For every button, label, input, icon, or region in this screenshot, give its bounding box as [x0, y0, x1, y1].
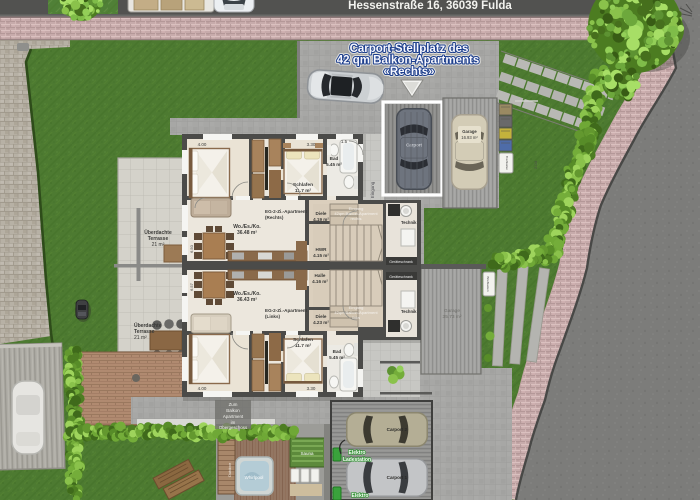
svg-text:21 m²: 21 m² [134, 335, 147, 341]
svg-text:Apartment: Apartment [223, 414, 244, 419]
svg-text:6.57: 6.57 [189, 282, 194, 291]
svg-text:links: links [352, 315, 360, 320]
svg-text:Elektro: Elektro [352, 493, 369, 499]
svg-text:EG-2-Zi.-Apartment: EG-2-Zi.-Apartment [265, 209, 308, 214]
svg-text:Diele: Diele [316, 314, 327, 319]
svg-text:5.45 m²: 5.45 m² [326, 162, 342, 167]
svg-text:16.93 m²: 16.93 m² [461, 135, 478, 140]
svg-text:Briefkasten: Briefkasten [486, 276, 490, 291]
svg-text:(Links): (Links) [265, 314, 281, 319]
svg-text:42 qm Balkon-Apartments: 42 qm Balkon-Apartments [337, 55, 480, 67]
svg-text:Halle: Halle [315, 273, 326, 278]
svg-text:3.30: 3.30 [307, 142, 316, 147]
svg-text:Carport 1: Carport 1 [387, 475, 408, 480]
svg-text:6.50: 6.50 [189, 244, 194, 253]
svg-text:4.23 m²: 4.23 m² [313, 320, 329, 325]
svg-text:Überdachte: Überdachte [134, 322, 162, 329]
svg-text:rechts: rechts [351, 216, 362, 221]
svg-text:1.5: 1.5 [341, 139, 348, 144]
svg-text:Balkon: Balkon [226, 408, 240, 413]
svg-text:«Rechts»: «Rechts» [383, 66, 434, 78]
svg-text:(Rechts): (Rechts) [265, 215, 284, 220]
svg-text:Sauna: Sauna [300, 451, 314, 456]
svg-text:HWR: HWR [316, 247, 328, 252]
svg-text:Hessenstraße 16, 36039 Fulda: Hessenstraße 16, 36039 Fulda [348, 0, 512, 12]
svg-text:Elektro: Elektro [349, 450, 366, 456]
svg-text:2.04: 2.04 [533, 160, 538, 169]
svg-text:Carport-Stellplatz des: Carport-Stellplatz des [350, 43, 469, 55]
svg-text:Ladestation: Ladestation [343, 457, 371, 463]
svg-text:4.00: 4.00 [198, 142, 207, 147]
svg-text:Briefkasten: Briefkasten [505, 156, 509, 170]
svg-text:4.15 m²: 4.15 m² [313, 253, 329, 258]
svg-text:Eingang: Eingang [370, 181, 375, 198]
svg-text:Geräteschrank: Geräteschrank [389, 260, 413, 264]
svg-text:Bad: Bad [333, 349, 342, 354]
svg-text:11.7 m²: 11.7 m² [295, 188, 312, 194]
svg-text:4.16 m²: 4.16 m² [312, 279, 328, 284]
svg-text:Obergeschoss: Obergeschoss [219, 425, 248, 430]
svg-text:5.45 m²: 5.45 m² [329, 355, 345, 360]
svg-text:21 m²: 21 m² [152, 242, 165, 248]
svg-text:Überdachte: Überdachte [144, 229, 172, 236]
svg-text:Carport: Carport [406, 143, 422, 148]
svg-text:Whirlpool: Whirlpool [245, 475, 264, 480]
svg-text:Technik: Technik [401, 309, 417, 314]
svg-text:Garage: Garage [444, 308, 460, 314]
svg-text:Geräteschrank: Geräteschrank [389, 275, 413, 279]
svg-text:35.73 m²: 35.73 m² [443, 314, 462, 320]
svg-text:3.30: 3.30 [307, 386, 316, 391]
svg-text:Bad: Bad [330, 156, 339, 161]
svg-text:36.43 m²: 36.43 m² [237, 297, 257, 303]
svg-text:Zum: Zum [229, 402, 238, 407]
svg-text:Schlafen: Schlafen [293, 337, 313, 343]
svg-text:11.7 m²: 11.7 m² [295, 343, 312, 349]
svg-text:36.48 m²: 36.48 m² [237, 230, 257, 236]
svg-text:Garage: Garage [462, 129, 477, 134]
svg-text:4.19 m²: 4.19 m² [313, 217, 329, 222]
svg-text:Technik: Technik [401, 220, 417, 225]
svg-text:EG-2-Zi.-Apartment: EG-2-Zi.-Apartment [265, 308, 308, 313]
svg-text:Diele: Diele [316, 211, 327, 216]
svg-text:Outdoor: Outdoor [227, 462, 232, 477]
svg-text:Carport 2: Carport 2 [387, 427, 408, 432]
svg-text:4.00: 4.00 [198, 386, 207, 391]
